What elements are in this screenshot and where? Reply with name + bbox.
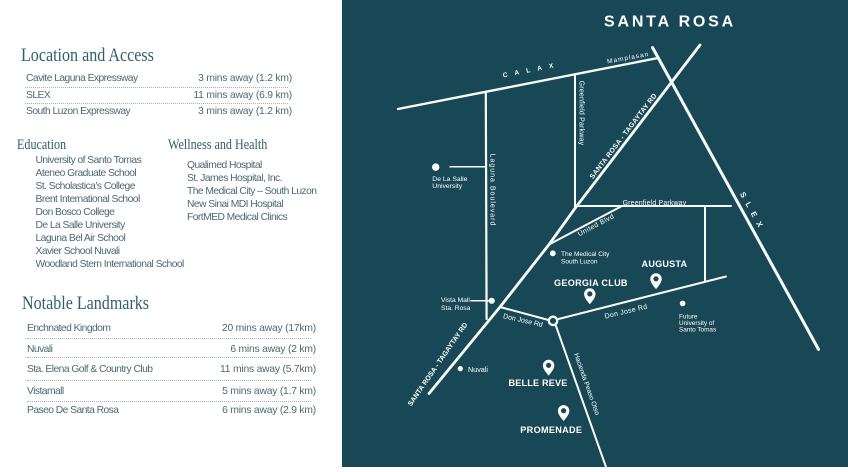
svg-text:PROMENADE: PROMENADE	[520, 425, 582, 435]
svg-text:Laguna Boulevard: Laguna Boulevard	[489, 154, 496, 227]
svg-text:SANTA ROSA: SANTA ROSA	[604, 13, 736, 30]
svg-text:GEORGIA CLUB: GEORGIA CLUB	[554, 278, 628, 288]
svg-text:Greenfield Parkway: Greenfield Parkway	[623, 200, 687, 207]
svg-text:University: University	[432, 183, 462, 190]
svg-text:BELLE REVE: BELLE REVE	[508, 378, 567, 388]
svg-text:Santo Tomas: Santo Tomas	[679, 327, 716, 334]
svg-text:Greenfield Parkway: Greenfield Parkway	[578, 81, 585, 146]
svg-text:AUGUSTA: AUGUSTA	[642, 259, 688, 269]
svg-text:Sta. Rosa: Sta. Rosa	[441, 305, 471, 312]
svg-text:SANTA ROSA - TAGAYTAY RD: SANTA ROSA - TAGAYTAY RD	[407, 322, 469, 408]
svg-text:CALAX: CALAX	[502, 61, 561, 79]
svg-text:The Medical City: The Medical City	[561, 251, 610, 258]
svg-text:Vista Mall: Vista Mall	[441, 297, 470, 304]
svg-text:SANTA ROSA - TAGAYTAY RD: SANTA ROSA - TAGAYTAY RD	[589, 92, 659, 180]
svg-text:Nuvali: Nuvali	[468, 365, 488, 374]
svg-text:Don Jose Rd: Don Jose Rd	[502, 313, 543, 329]
svg-text:South Luzon: South Luzon	[561, 258, 598, 265]
